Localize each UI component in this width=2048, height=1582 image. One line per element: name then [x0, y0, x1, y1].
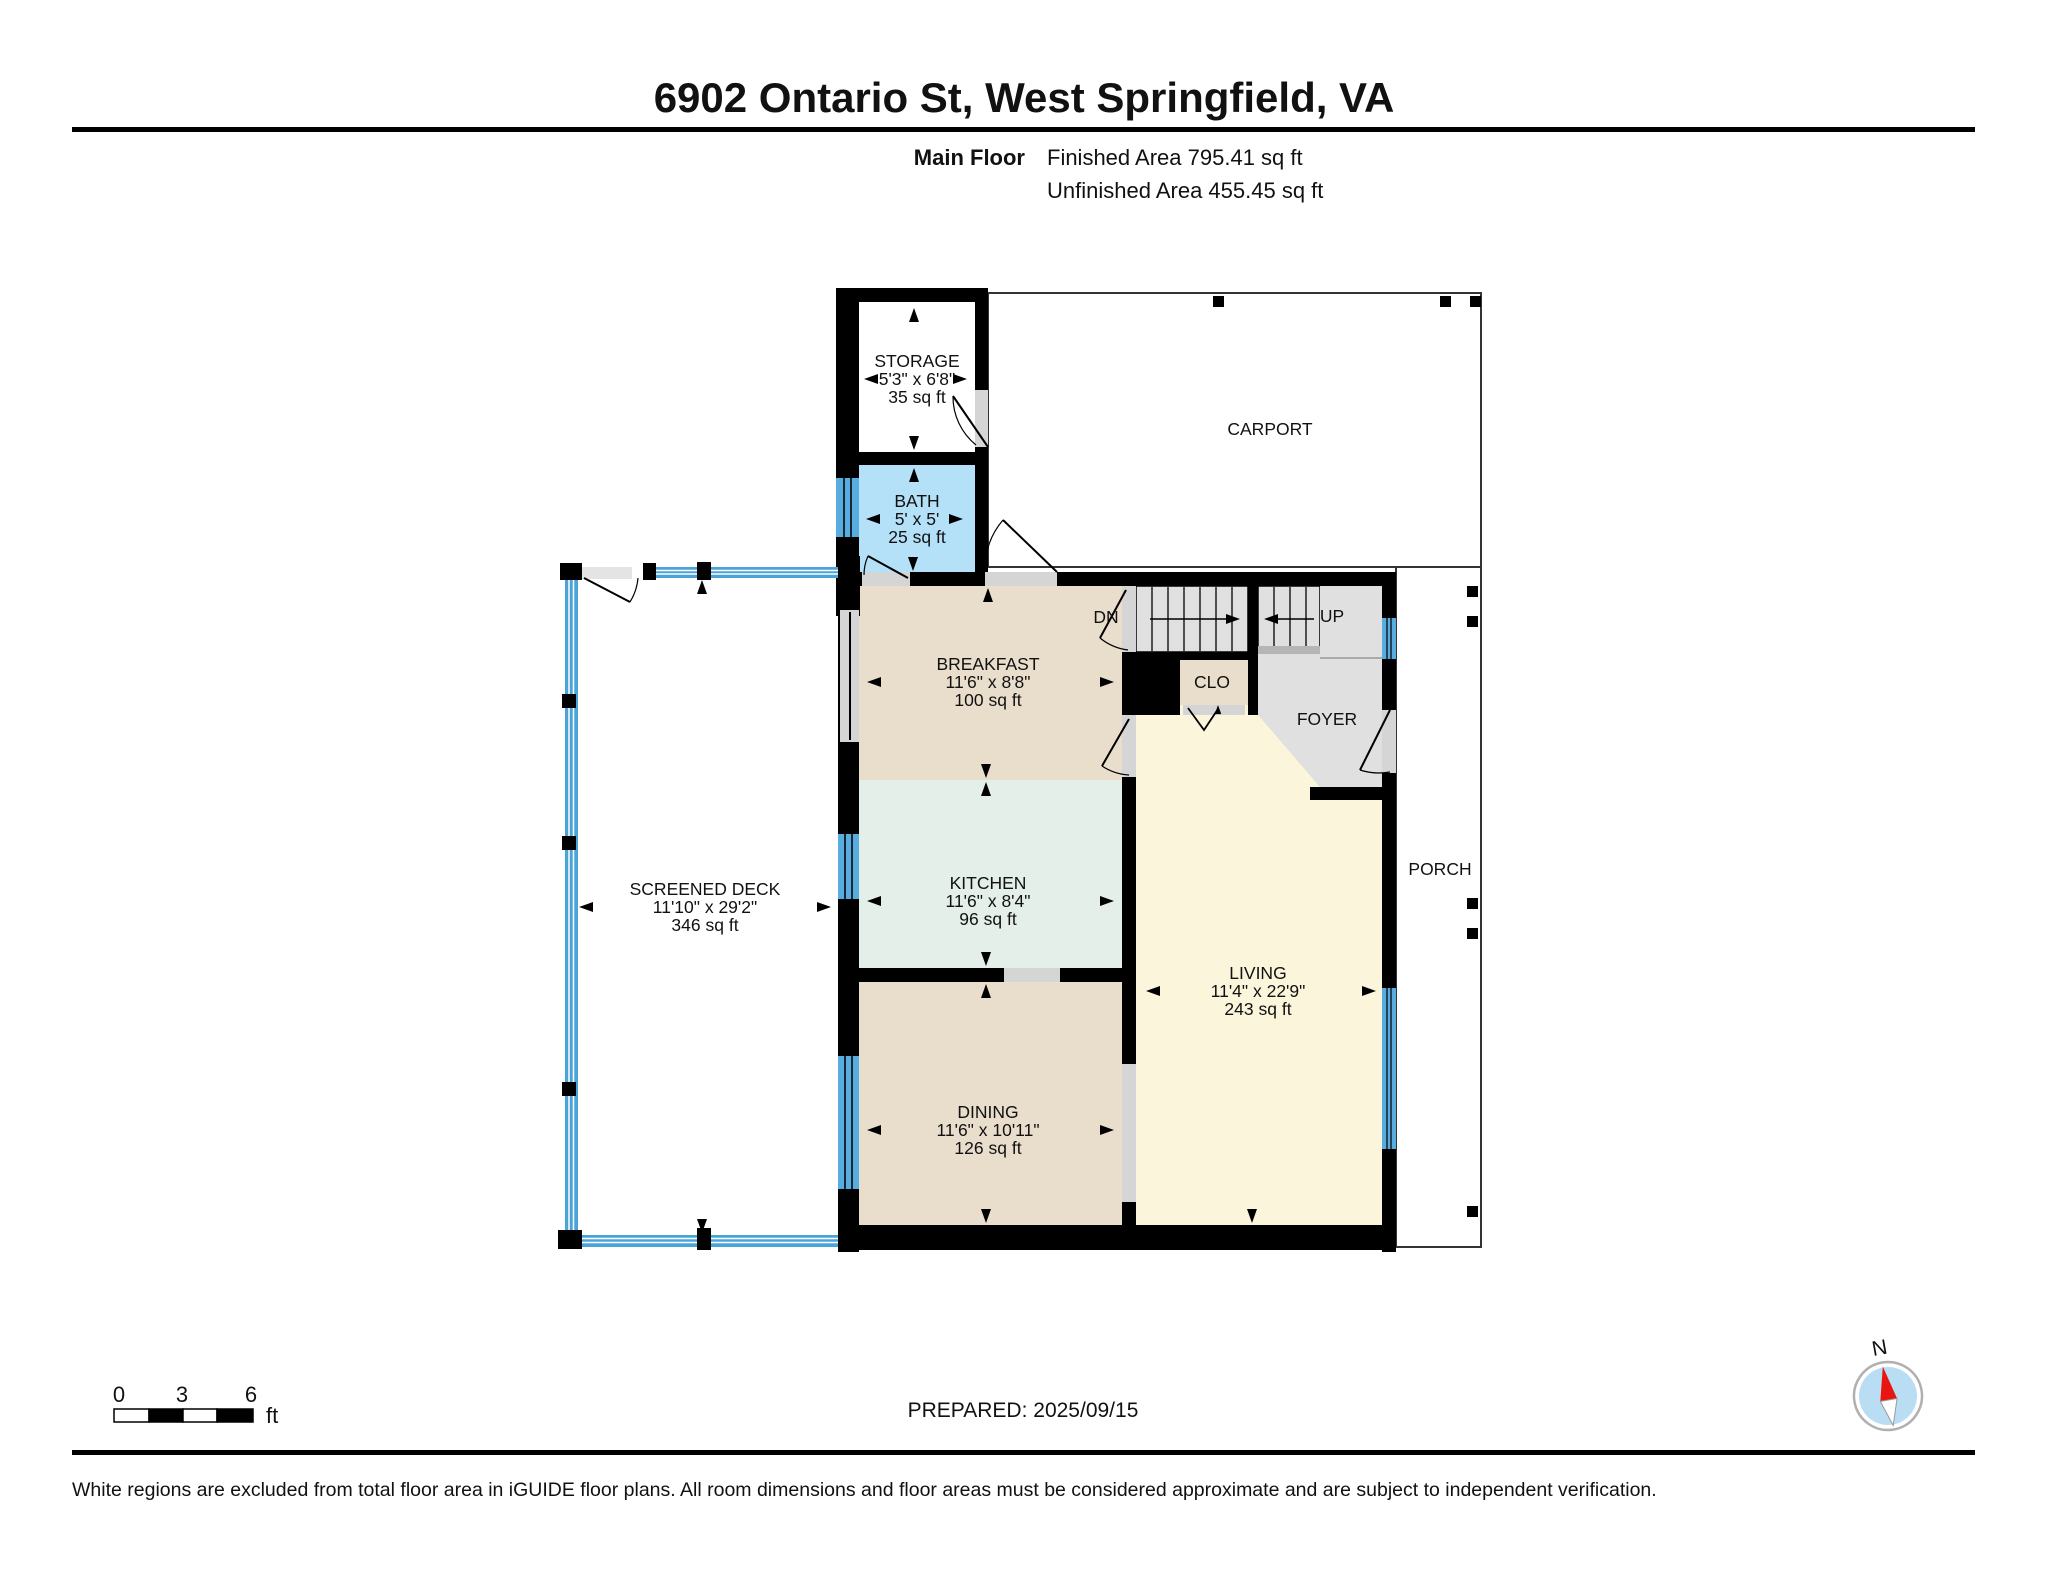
storage-label: STORAGE	[874, 351, 959, 371]
carport-post	[1213, 296, 1224, 307]
carport-door-opening	[985, 572, 1057, 586]
kitchen-area: 96 sq ft	[959, 909, 1017, 929]
finished-area-label: Finished Area 795.41 sq ft	[1047, 145, 1303, 170]
footer-divider	[72, 1450, 1975, 1455]
landing-window	[1382, 613, 1396, 664]
kitchen-dining-wall	[859, 968, 1136, 982]
porch-post	[1467, 898, 1478, 909]
porch-post	[1467, 1206, 1478, 1217]
deck-gate-opening	[582, 567, 632, 579]
porch-post	[1467, 928, 1478, 939]
storage-door-arc	[953, 396, 976, 445]
footer: White regions are excluded from total fl…	[72, 1450, 1975, 1501]
scale-tick-6: 6	[245, 1382, 257, 1407]
deck-post	[558, 1230, 582, 1249]
storage-area: 35 sq ft	[888, 387, 946, 407]
dining-area: 126 sq ft	[954, 1138, 1021, 1158]
bath-dims: 5' x 5'	[895, 509, 940, 529]
foyer-label: FOYER	[1297, 709, 1357, 729]
scale-bar: 0 3 6 ft	[113, 1382, 278, 1428]
page-title: 6902 Ontario St, West Springfield, VA	[654, 74, 1395, 121]
prepared-date: PREPARED: 2025/09/15	[908, 1399, 1139, 1422]
storage-bath-divider-wall	[859, 452, 975, 465]
closet-label: CLO	[1194, 672, 1230, 692]
floor-plan-canvas: 6902 Ontario St, West Springfield, VA Ma…	[0, 0, 2048, 1582]
stair-closet-wall-mass	[1122, 652, 1180, 715]
scale-unit: ft	[266, 1403, 278, 1428]
kitchen-label: KITCHEN	[950, 873, 1027, 893]
header: 6902 Ontario St, West Springfield, VA Ma…	[72, 74, 1975, 203]
porch-label: PORCH	[1408, 859, 1471, 879]
house-top-wall	[838, 572, 1396, 586]
header-divider	[72, 127, 1975, 132]
deck-post	[562, 836, 576, 850]
compass-north-label: N	[1870, 1336, 1889, 1361]
bath-area: 25 sq ft	[888, 527, 946, 547]
screened-deck-area: 346 sq ft	[671, 915, 738, 935]
floor-label: Main Floor	[914, 145, 1026, 170]
stairs-up-label: UP	[1320, 606, 1344, 626]
breakfast-area: 100 sq ft	[954, 690, 1021, 710]
deck-screen-top	[656, 567, 838, 578]
foyer-bottom-wall	[1310, 787, 1382, 800]
stair-divider-wall	[1248, 586, 1258, 715]
carport-post	[1470, 296, 1481, 307]
dining-label: DINING	[957, 1102, 1018, 1122]
kitchen-window	[838, 829, 859, 904]
living-door-opening	[1122, 715, 1136, 777]
stairs-down-label: DN	[1093, 607, 1118, 627]
storage-dims: 5'3" x 6'8"	[879, 369, 956, 389]
deck-house-corner	[836, 556, 860, 616]
house-bottom-wall	[838, 1225, 1396, 1250]
carport-post	[1440, 296, 1451, 307]
dining-window	[838, 1051, 859, 1194]
kitchen-dims: 11'6" x 8'4"	[946, 891, 1031, 911]
deck-post	[560, 563, 582, 580]
bath-window	[836, 473, 859, 542]
breakfast-dims: 11'6" x 8'8"	[946, 672, 1031, 692]
deck-post	[643, 563, 656, 580]
living-window	[1382, 983, 1396, 1154]
deck-post	[562, 694, 576, 708]
unfinished-area-label: Unfinished Area 455.45 sq ft	[1047, 178, 1323, 203]
deck-post	[562, 1082, 576, 1096]
living-dims: 11'4" x 22'9"	[1211, 981, 1306, 1001]
front-door-opening	[1382, 710, 1396, 773]
deck-screen-left	[565, 578, 578, 1235]
screened-deck-dims: 11'10" x 29'2"	[653, 897, 757, 917]
scale-tick-3: 3	[176, 1382, 188, 1407]
deck-post	[697, 1228, 711, 1250]
dining-living-opening	[1122, 1064, 1136, 1202]
screened-deck-label: SCREENED DECK	[630, 879, 781, 899]
center-wall-mid	[1122, 982, 1136, 1064]
living-label: LIVING	[1229, 963, 1286, 983]
disclaimer-text: White regions are excluded from total fl…	[72, 1479, 1657, 1501]
center-wall-lower	[1122, 1202, 1136, 1225]
stairs-entry-opening	[1122, 586, 1136, 652]
deck-gate-arc	[630, 578, 638, 602]
deck-gate-leaf	[584, 578, 630, 602]
scale-tick-0: 0	[113, 1382, 125, 1407]
deck-post	[697, 562, 711, 580]
closet-top-wall	[1180, 652, 1248, 660]
porch-post	[1467, 616, 1478, 627]
stairs	[1136, 586, 1382, 658]
kitchen-passthrough-opening	[1004, 968, 1060, 982]
stairs-up-nosing	[1258, 646, 1320, 654]
living-area: 243 sq ft	[1224, 999, 1291, 1019]
carport-label: CARPORT	[1227, 419, 1313, 439]
center-wall-upper	[1122, 777, 1136, 968]
compass-icon: N	[1844, 1331, 1927, 1435]
breakfast-label: BREAKFAST	[936, 654, 1039, 674]
dining-dims: 11'6" x 10'11"	[936, 1120, 1039, 1140]
porch-post	[1467, 586, 1478, 597]
bath-label: BATH	[894, 491, 939, 511]
